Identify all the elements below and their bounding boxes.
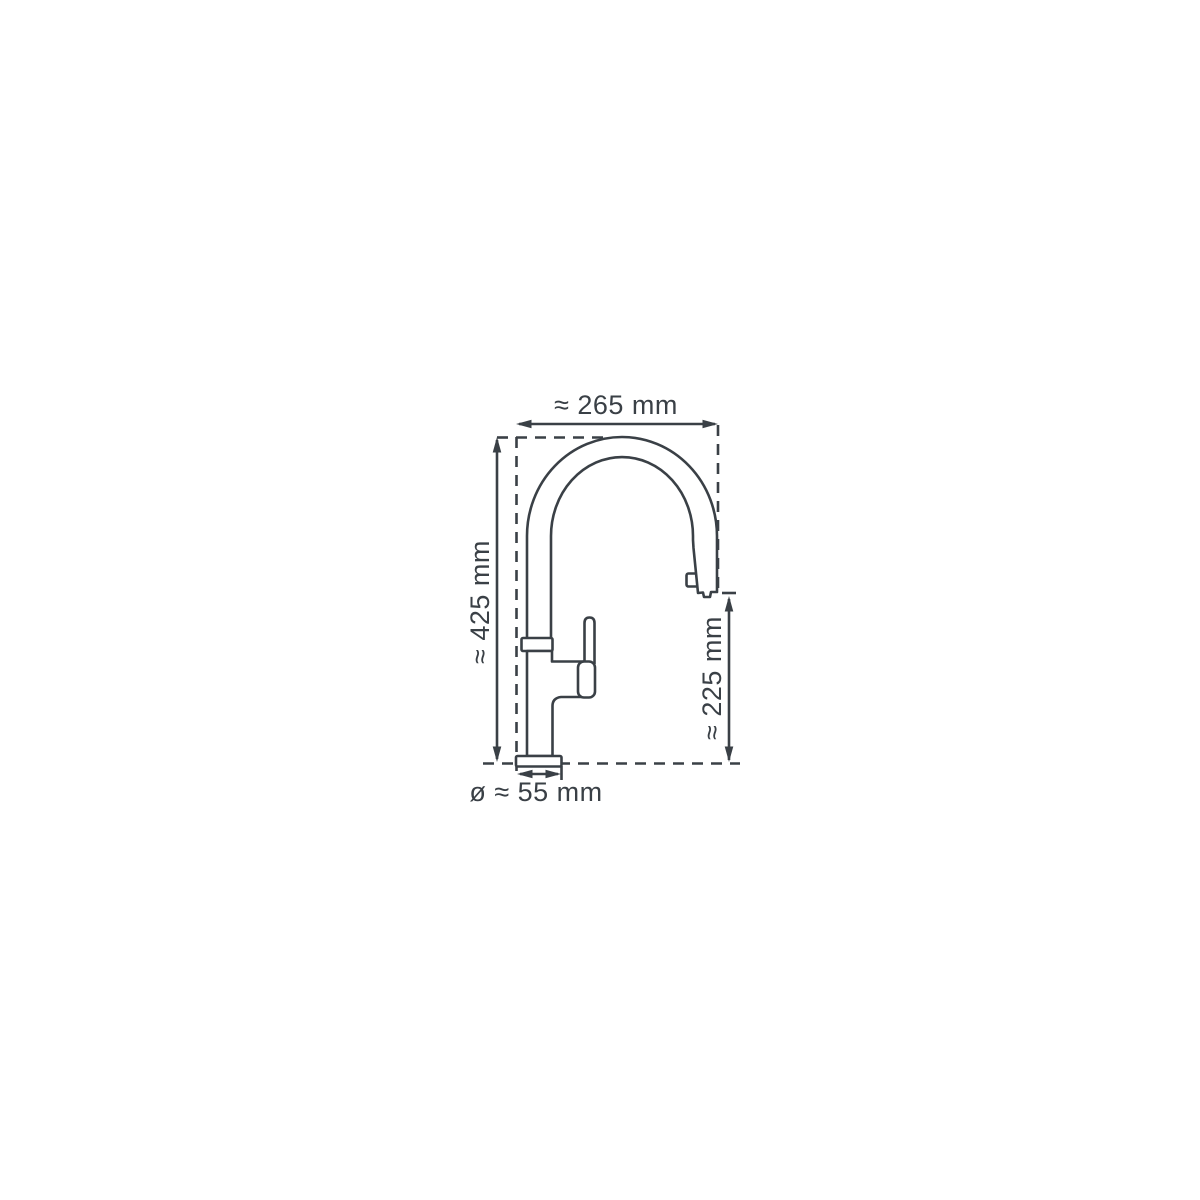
dimension-label-outlet-height: ≈ 225 mm	[697, 616, 727, 740]
faucet-dimension-drawing: ≈ 265 mm ≈ 425 mm ≈ 225 mm ø ≈ 55 mm	[0, 0, 1200, 1200]
handle-lever	[585, 618, 595, 665]
neck-collar	[522, 638, 553, 651]
faucet-outline	[516, 437, 717, 767]
arrowhead-outlet-bottom	[725, 747, 734, 763]
dimension-label-total-height: ≈ 425 mm	[465, 540, 495, 664]
handle-cartridge-cap	[578, 662, 595, 698]
spout-and-spray-head	[527, 437, 717, 651]
arrowhead-height-top	[493, 437, 502, 453]
arrowhead-outlet-top	[725, 596, 734, 612]
arrowhead-width-left	[516, 420, 532, 429]
dimension-label-spout-width: ≈ 265 mm	[554, 390, 678, 420]
arrowhead-width-right	[703, 420, 719, 429]
faucet-body	[527, 651, 584, 756]
dimension-label-base-diameter: ø ≈ 55 mm	[469, 777, 602, 807]
base-flange	[516, 756, 562, 767]
arrowhead-height-bottom	[493, 747, 502, 763]
diagram-canvas: ≈ 265 mm ≈ 425 mm ≈ 225 mm ø ≈ 55 mm	[0, 0, 1200, 1200]
